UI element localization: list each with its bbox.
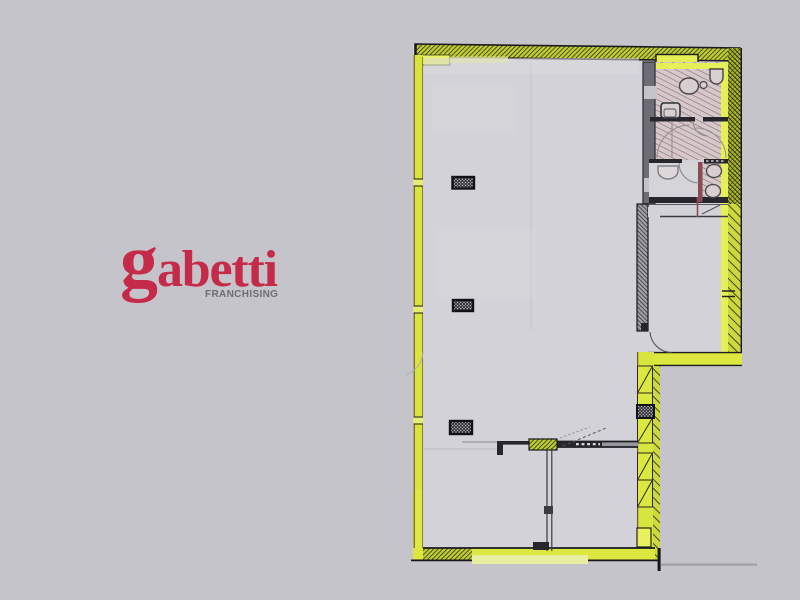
svg-text:g: g: [120, 219, 158, 303]
svg-text:FRANCHISING: FRANCHISING: [205, 289, 278, 300]
